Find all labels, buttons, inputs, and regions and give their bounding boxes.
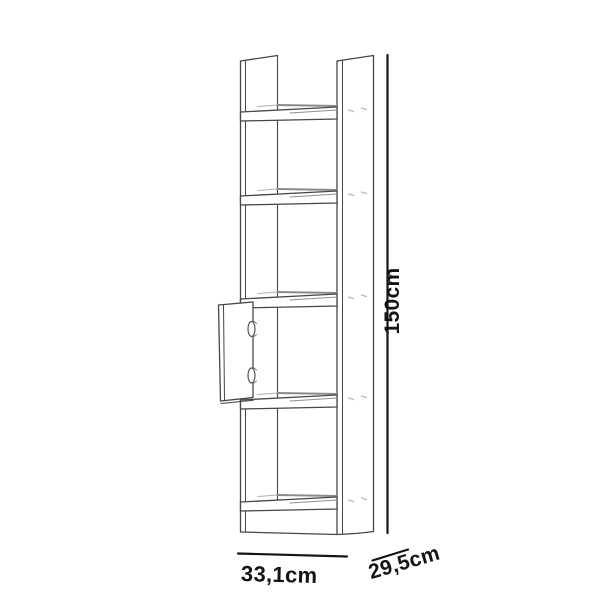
shelf-1 — [241, 105, 338, 121]
width-dimension-label: 33,1cm — [241, 561, 318, 588]
width-dimension: 33,1cm — [238, 554, 347, 588]
bookcase-drawing: 150cm 33,1cm 29,5cm — [0, 0, 604, 604]
height-dimension-label: 150cm — [381, 268, 404, 335]
shelf-5 — [241, 495, 338, 511]
shelf-3 — [241, 292, 338, 308]
depth-dimension-label: 29,5cm — [366, 541, 443, 584]
shelf-4 — [241, 393, 338, 409]
door-hinge-top — [248, 322, 255, 337]
door-hinge-bottom — [248, 368, 255, 383]
base-plinth — [241, 532, 374, 535]
depth-dimension: 29,5cm — [366, 541, 443, 584]
right-side-panel — [337, 56, 374, 535]
dimension-diagram: 150cm 33,1cm 29,5cm — [0, 0, 604, 604]
cabinet-door — [219, 302, 257, 404]
cam-screw-marks — [349, 108, 367, 502]
height-dimension: 150cm — [381, 55, 404, 533]
bookcase — [219, 56, 374, 535]
width-dimension-line — [238, 554, 347, 557]
shelf-2 — [241, 189, 338, 205]
